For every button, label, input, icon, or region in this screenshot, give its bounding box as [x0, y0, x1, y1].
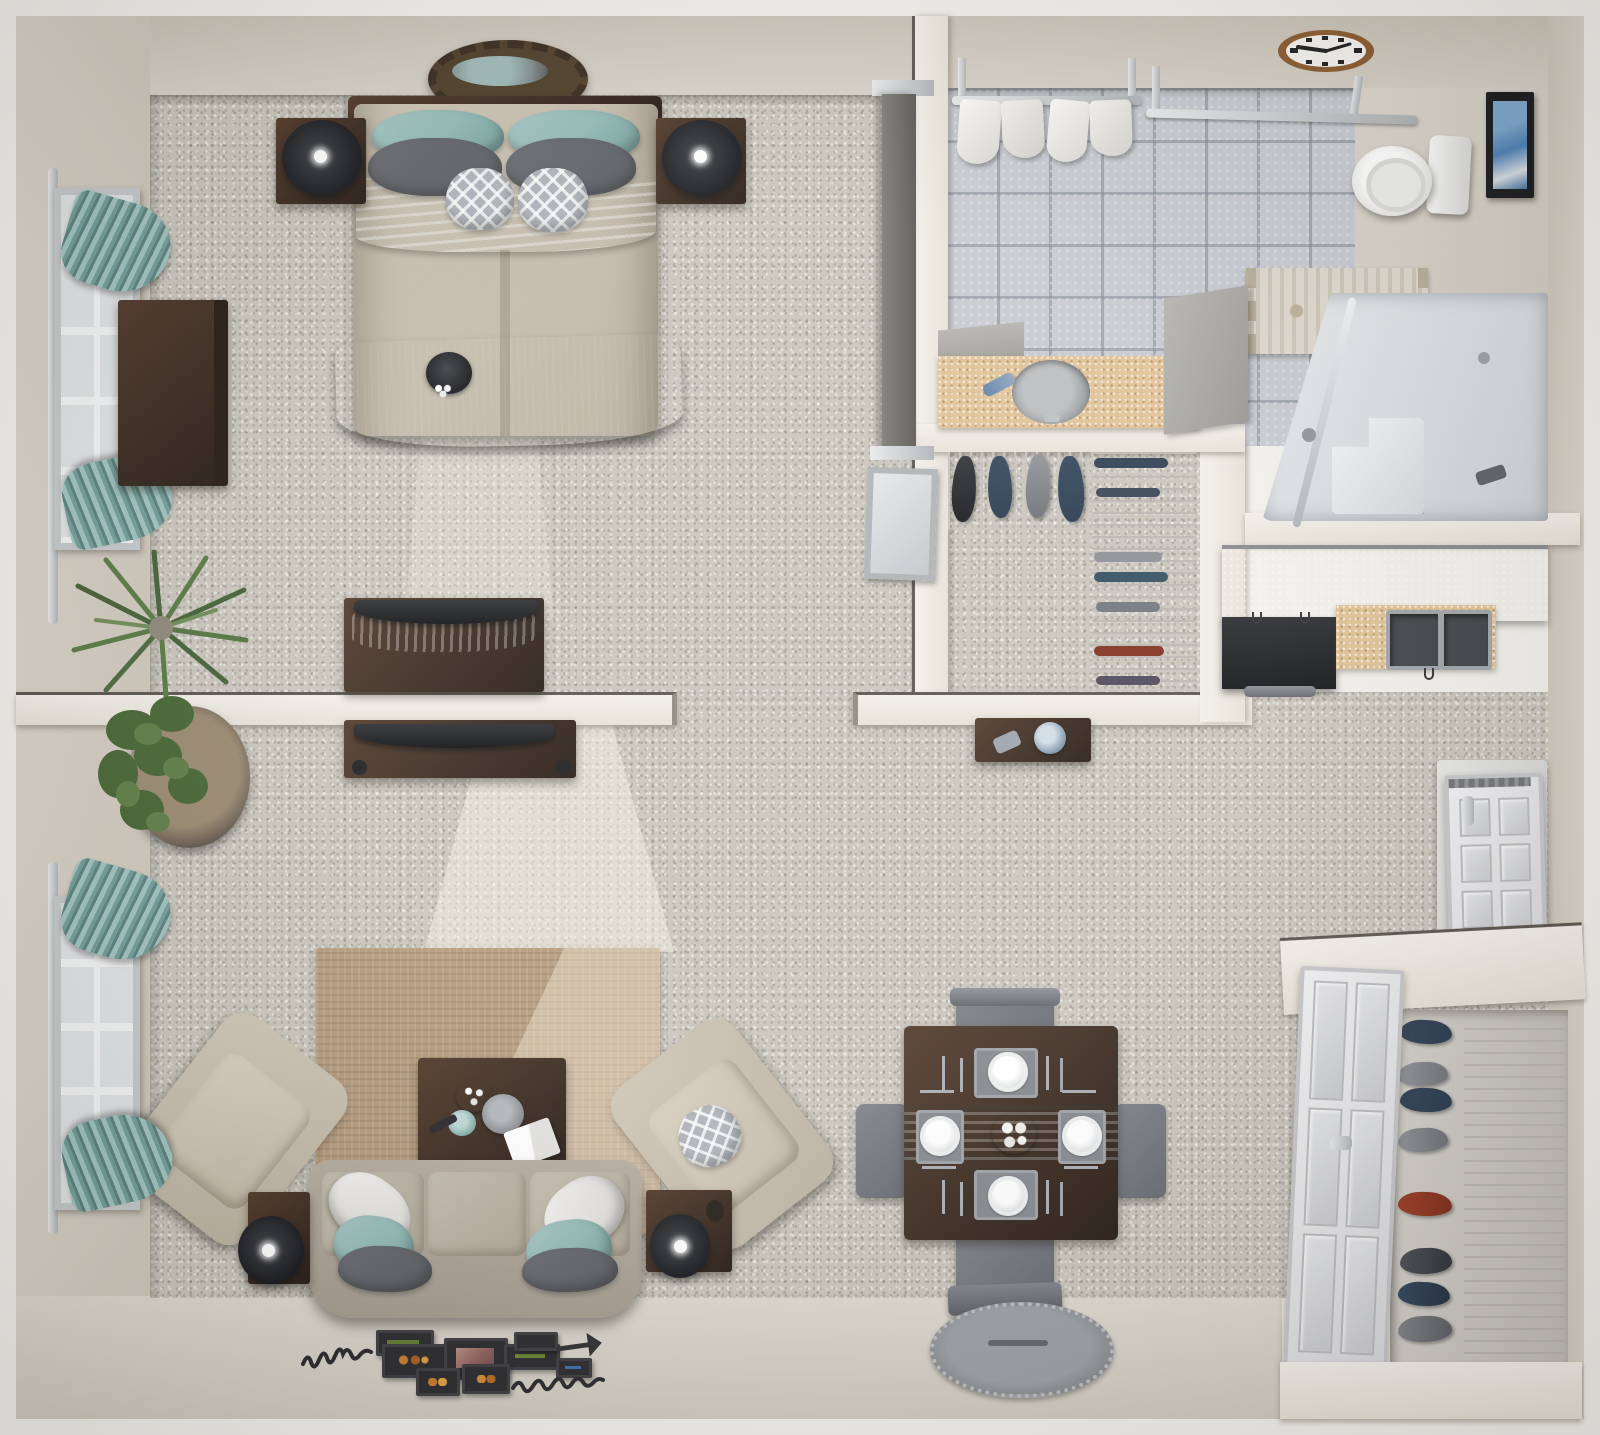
closet-clothes-1 [1094, 458, 1168, 468]
kitchen-hook-3 [1424, 668, 1434, 680]
dining-chair-north-back [950, 988, 1060, 1006]
dining-silverware-south [942, 1180, 945, 1214]
closet-clothes-6 [1094, 646, 1164, 656]
bedroom-door-open [882, 94, 916, 448]
entry-closet-bottom-wall [1280, 1362, 1582, 1419]
towel-1 [956, 99, 1002, 166]
front-door-panel [1461, 890, 1493, 929]
wall-art-box-4-content [515, 1354, 545, 1358]
dining-silverware-west [920, 1090, 954, 1093]
kitchen-sink-right [1440, 610, 1492, 670]
wall-art-box-8 [462, 1364, 510, 1394]
dining-chair-west [856, 1104, 908, 1198]
entry-closet-door-panel [1309, 981, 1348, 1101]
entry-closet-door [1283, 966, 1404, 1370]
kitchen-sink-left [1386, 610, 1442, 670]
kitchen-hook-1 [1252, 612, 1262, 624]
bedroom-dresser [118, 300, 228, 486]
dining-plate-south [988, 1176, 1028, 1216]
sofa-cushion-2 [428, 1172, 526, 1256]
front-door-panel [1498, 797, 1530, 836]
dining-plate-west [920, 1116, 960, 1156]
closet-clothes-4 [1094, 572, 1168, 582]
towel-4 [1089, 99, 1133, 156]
wall-art-box-7 [416, 1368, 460, 1396]
front-door-handle [1462, 796, 1474, 826]
spike-plant [66, 550, 251, 700]
toilet-seat-ring [1366, 158, 1426, 212]
bed-decor-flowers [432, 382, 454, 398]
vanity-partition-wall [1164, 285, 1248, 434]
wall-art-box-6-content [565, 1366, 581, 1369]
kitchen-range [1222, 617, 1336, 689]
toilet-tank [1426, 135, 1472, 215]
framed-picture [1486, 92, 1534, 198]
wall-clock [1276, 28, 1376, 74]
bed-pillow-accent-left [446, 168, 514, 230]
shower-knob [1302, 428, 1316, 442]
vanity-faucet [1044, 414, 1060, 422]
entry-closet-door-panel [1351, 982, 1390, 1102]
closet-clothes-2 [1096, 488, 1160, 497]
bedroom-door-frame-bottom [870, 446, 934, 460]
framed-picture-art [1493, 101, 1527, 189]
entry-oval-mat-detail [988, 1340, 1048, 1346]
front-door-panel [1499, 843, 1531, 882]
dining-plate-north [988, 1052, 1028, 1092]
bed-pillow-accent-right [518, 168, 588, 232]
dining-silverware-north [942, 1056, 945, 1090]
dining-center-tray [992, 1114, 1036, 1154]
entry-closet-door-panel [1345, 1109, 1384, 1229]
lamp-end-left-bulb [262, 1244, 275, 1257]
wall-art-box-5 [514, 1332, 558, 1351]
living-console-knob-left [352, 760, 367, 775]
dining-silverware-east [1062, 1090, 1096, 1093]
entry-closet-door-panel [1298, 1234, 1337, 1354]
entry-closet-door-knob [1330, 1136, 1352, 1150]
living-console-knob-right [556, 760, 571, 775]
wall-art-box-8-content [473, 1375, 497, 1383]
closet-clothes-7 [1096, 676, 1160, 685]
sunburst-mirror-glass [452, 56, 548, 86]
floorplan-render [0, 0, 1600, 1435]
bed-throw-black [335, 333, 684, 450]
fiddle-plant-leaves [92, 690, 252, 850]
wall-art-box-2-content [395, 1355, 429, 1365]
lamp-bulb-right [694, 150, 707, 163]
dining-chair-east [1114, 1104, 1166, 1198]
leaning-mirror [864, 467, 938, 581]
front-door-panel [1500, 889, 1532, 928]
wall-art-script-left [300, 1346, 376, 1374]
hall-console-cup [1034, 722, 1066, 754]
dining-plate-east [1062, 1116, 1102, 1156]
closet-clothes-3 [1094, 552, 1162, 562]
kitchen-hook-2 [1300, 612, 1310, 624]
entry-closet-door-panel [1340, 1235, 1379, 1355]
entry-oval-mat [930, 1302, 1114, 1398]
front-door-panel [1460, 844, 1492, 883]
entry-closet-door-panel [1303, 1107, 1342, 1227]
end-table-right-decor [706, 1200, 724, 1222]
lamp-end-right-bulb [674, 1240, 687, 1253]
kitchen-range-handle [1244, 686, 1316, 697]
shower-drain [1478, 352, 1490, 364]
closet-clothes-5 [1096, 602, 1160, 612]
wall-art-box-7-content [426, 1378, 448, 1386]
towel-2 [1001, 99, 1046, 159]
lamp-bulb-left [314, 150, 327, 163]
entry-closet-wire-rack [1464, 1016, 1566, 1364]
wall-art-script-right [510, 1374, 606, 1398]
